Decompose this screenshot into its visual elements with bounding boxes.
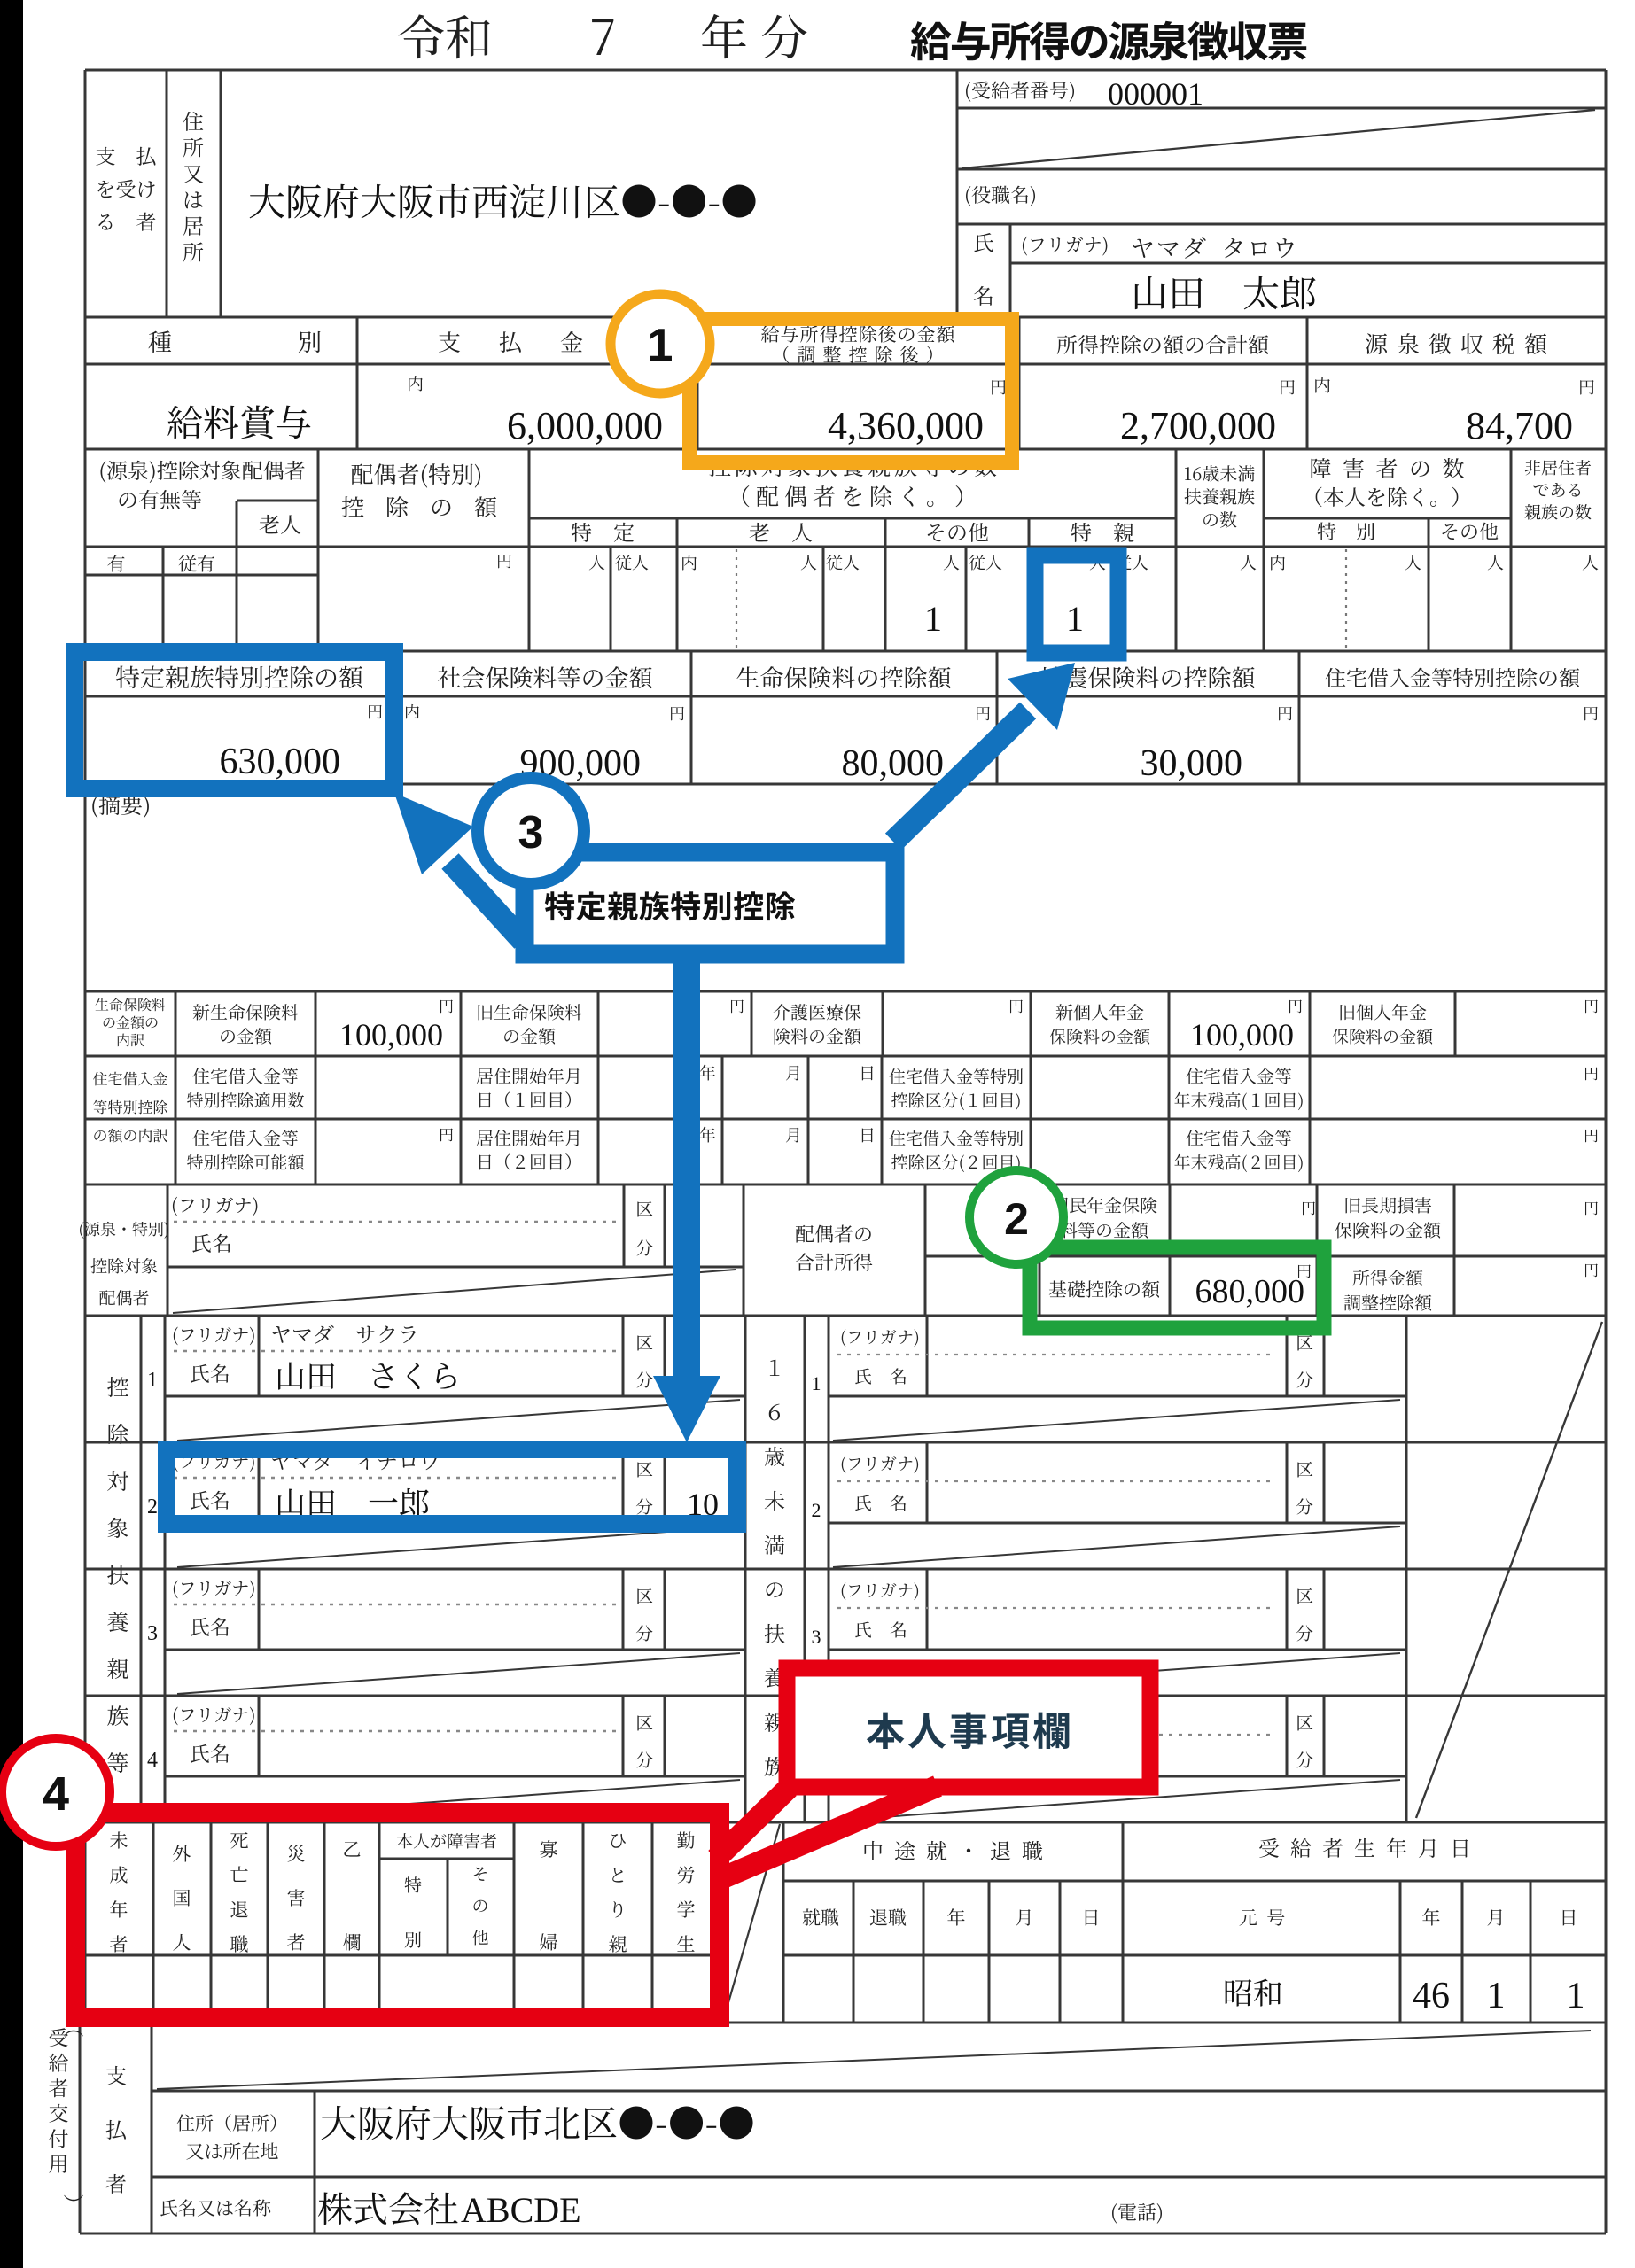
svg-text:84,700: 84,700 bbox=[1466, 404, 1573, 447]
svg-text:4: 4 bbox=[43, 1767, 69, 1821]
svg-text:3: 3 bbox=[147, 1622, 158, 1645]
svg-text:000001: 000001 bbox=[1108, 76, 1203, 112]
svg-text:ABCDE: ABCDE bbox=[461, 2190, 581, 2230]
svg-text:1: 1 bbox=[147, 1369, 158, 1392]
svg-text:1: 1 bbox=[648, 320, 673, 371]
svg-text:3: 3 bbox=[518, 807, 544, 858]
svg-text:30,000: 30,000 bbox=[1141, 743, 1243, 784]
svg-text:1: 1 bbox=[812, 1372, 821, 1394]
svg-text:6,000,000: 6,000,000 bbox=[507, 404, 663, 447]
svg-text:3: 3 bbox=[812, 1626, 821, 1648]
svg-text:1: 1 bbox=[924, 599, 942, 639]
svg-text:2,700,000: 2,700,000 bbox=[1120, 404, 1276, 447]
svg-text:2: 2 bbox=[1004, 1194, 1029, 1244]
svg-text:100,000: 100,000 bbox=[339, 1017, 443, 1052]
svg-text:630,000: 630,000 bbox=[220, 742, 341, 782]
svg-text:4,360,000: 4,360,000 bbox=[828, 404, 984, 447]
svg-text:1: 1 bbox=[1066, 599, 1084, 639]
svg-text:1: 1 bbox=[1487, 1976, 1506, 2016]
svg-text:680,000: 680,000 bbox=[1195, 1273, 1305, 1310]
svg-text:100,000: 100,000 bbox=[1190, 1017, 1294, 1052]
svg-text:46: 46 bbox=[1413, 1976, 1450, 2016]
svg-text:1: 1 bbox=[1567, 1976, 1585, 2016]
svg-text:80,000: 80,000 bbox=[842, 743, 945, 784]
svg-text:2: 2 bbox=[147, 1495, 158, 1518]
svg-text:4: 4 bbox=[147, 1749, 158, 1772]
svg-text:2: 2 bbox=[812, 1499, 821, 1521]
